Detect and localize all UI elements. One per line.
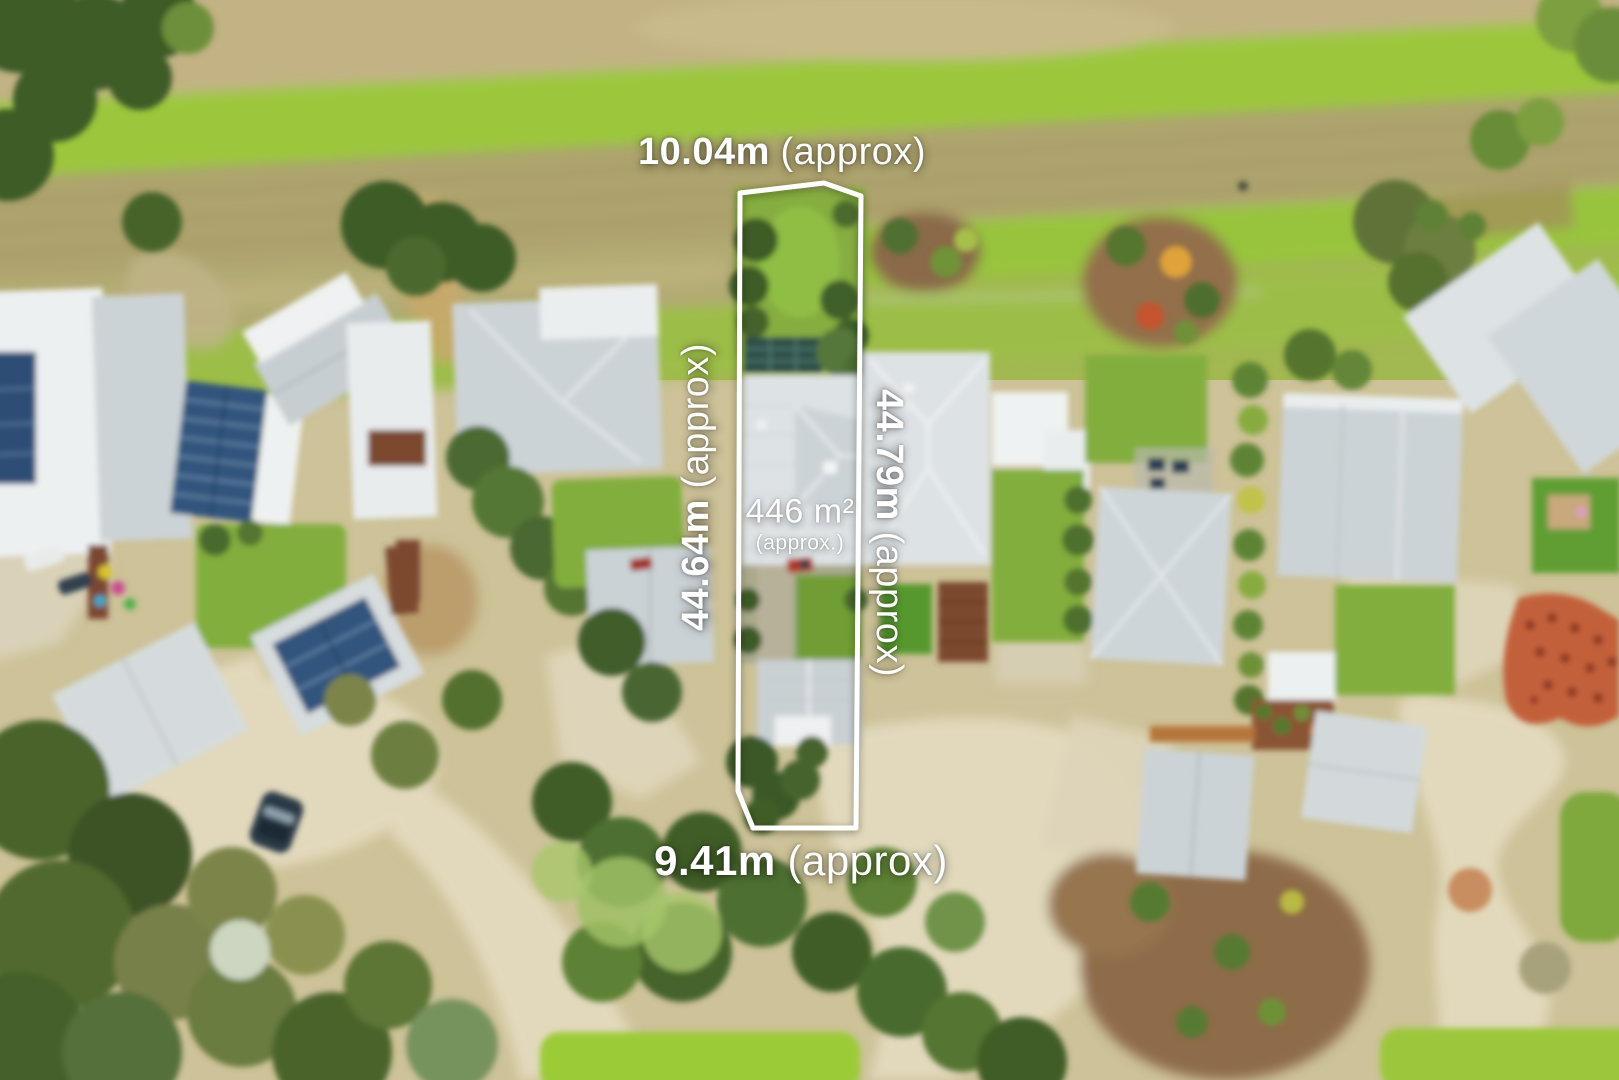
dimension-left-qualifier: (approx) <box>675 343 717 489</box>
lawn-bottom <box>540 1032 860 1080</box>
dimension-bottom-qualifier: (approx) <box>787 837 947 884</box>
dimension-right-value: 44.79m <box>868 389 910 521</box>
area-qualifier: (approx.) <box>746 533 855 554</box>
deck-west <box>368 430 426 466</box>
silver-bush <box>210 920 270 980</box>
subject-solar-array <box>744 337 822 373</box>
park-garden-bed <box>1082 216 1238 348</box>
pyramid-roof-house <box>1091 487 1232 666</box>
aerial-photo: 10.04m(approx) 9.41m(approx) 44.64m(appr… <box>0 0 1619 1080</box>
dimension-top-value: 10.04m <box>638 131 770 173</box>
dimension-label-top: 10.04m(approx) <box>638 133 926 171</box>
dimension-top-qualifier: (approx) <box>781 131 927 173</box>
subject-path <box>757 565 793 663</box>
dimension-left-value: 44.64m <box>675 499 717 631</box>
dimension-label-right: 44.79m(approx) <box>870 389 908 677</box>
skylight <box>822 460 838 475</box>
subject-front-lawn <box>796 575 861 659</box>
area-label: 446 m² (approx.) <box>746 495 855 554</box>
dimension-label-left: 44.64m(approx) <box>677 343 715 631</box>
solar-array-west-edge <box>0 352 36 484</box>
dimension-bottom-value: 9.41m <box>654 837 776 884</box>
dimension-right-qualifier: (approx) <box>868 532 910 678</box>
dimension-label-bottom: 9.41m(approx) <box>654 840 948 882</box>
area-value: 446 m² <box>746 495 855 529</box>
